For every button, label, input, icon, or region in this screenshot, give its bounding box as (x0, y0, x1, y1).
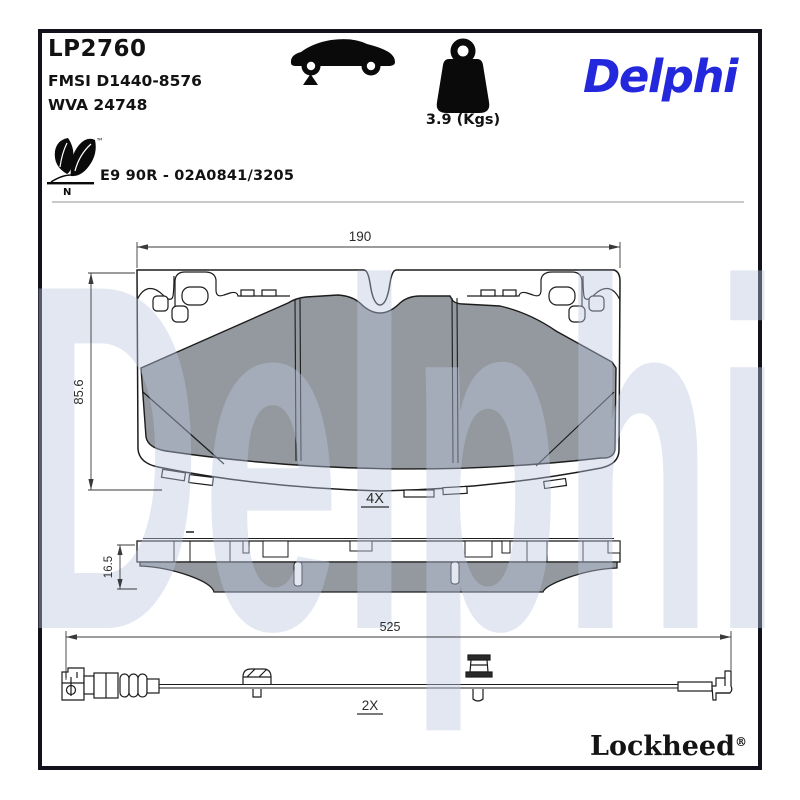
fmsi-code-label: FMSI D1440-8576 (48, 72, 202, 90)
svg-text:2X: 2X (362, 698, 379, 713)
svg-text:190: 190 (349, 229, 372, 244)
registered-symbol: ® (735, 735, 747, 749)
svg-text:525: 525 (380, 620, 401, 634)
car-icon (283, 36, 403, 88)
header-divider (52, 201, 744, 203)
eco-n-label: N (63, 187, 71, 198)
leaf-eco-icon: ™ N (46, 134, 102, 198)
delphi-logo: Delphi (583, 50, 737, 103)
weight-icon (423, 36, 503, 116)
brake-pad-datasheet: LP2760 FMSI D1440-8576 WVA 24748 3.9 (Kg… (0, 0, 800, 800)
delphi-watermark: Delphi (22, 183, 782, 736)
front-axle-marker (303, 74, 318, 85)
svg-text:16.5: 16.5 (103, 556, 115, 578)
wva-code-label: WVA 24748 (48, 96, 147, 114)
technical-drawing: Delphi 190 85.6 4X 16.5 525 2X (0, 0, 800, 800)
svg-text:4X: 4X (366, 491, 384, 507)
part-number-label: LP2760 (48, 36, 147, 62)
lockheed-text: Lockheed (590, 731, 735, 762)
lockheed-logo: Lockheed® (555, 731, 747, 762)
svg-text:85.6: 85.6 (71, 379, 86, 404)
weight-label: 3.9 (Kgs) (408, 112, 518, 128)
approval-code-label: E9 90R - 02A0841/3205 (100, 168, 294, 184)
trademark-symbol: ™ (96, 137, 102, 146)
